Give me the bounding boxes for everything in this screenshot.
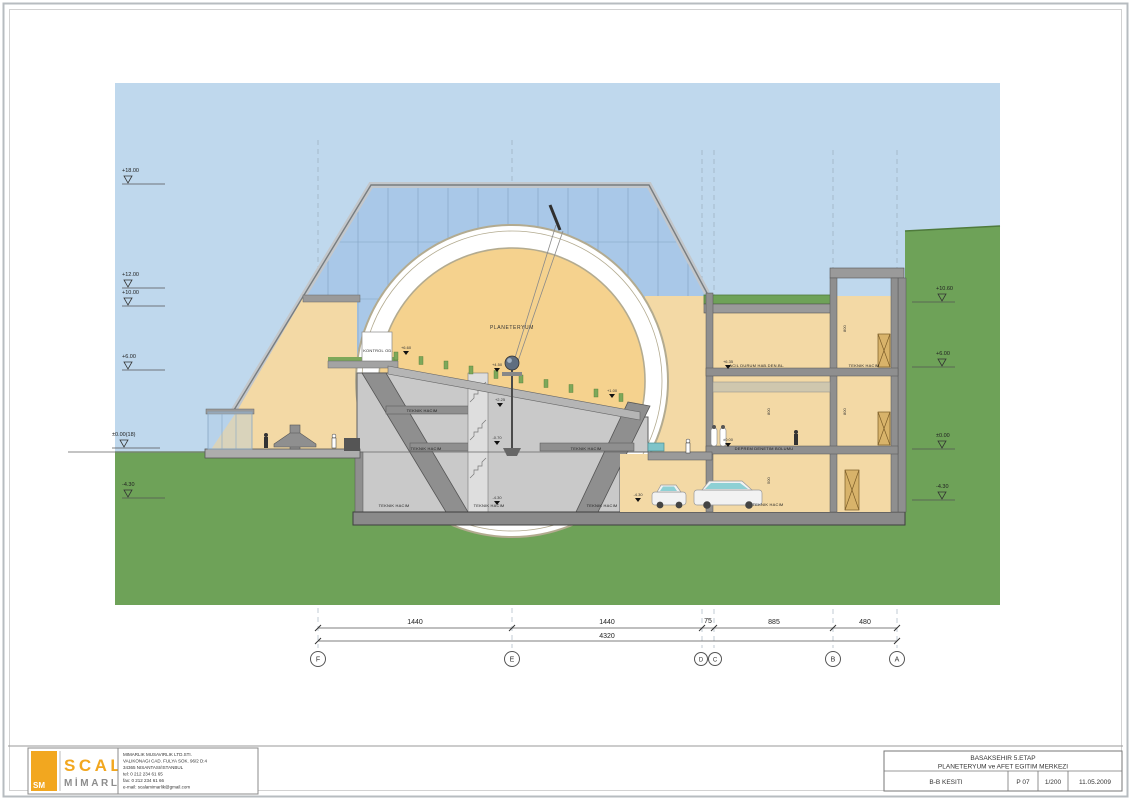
dim-label: 1440 — [599, 619, 615, 626]
earthquake-room-label: DEPREM DENETIM BOLUMU — [735, 446, 794, 451]
vdim-label: 800 — [766, 408, 771, 415]
retaining-wall — [898, 278, 906, 512]
wall-a — [891, 278, 898, 512]
address-line: MIMARLIK MUSAVIRLIK LTD.STI. — [123, 752, 192, 757]
catwalk-slab — [328, 361, 398, 368]
elevation-label: -4.30 — [122, 482, 135, 488]
sheet-number: P 07 — [1016, 779, 1030, 786]
project-name-line2: PLANETERYUM ve AFET EGITIM MERKEZI — [938, 764, 1068, 771]
elevation-label: +12.00 — [122, 272, 139, 278]
vdim-label: 500 — [766, 477, 771, 484]
svg-text:B: B — [831, 657, 836, 664]
elev-mark: +1.00 — [607, 388, 618, 393]
drawing-sheet: PLANETERYUM KONTROL OD. TEKNIK HACIM TEK… — [0, 0, 1131, 800]
elevation-label: +10.60 — [936, 286, 953, 292]
project-title-block: BASAKSEHIR 5.ETAP PLANETERYUM ve AFET EG… — [884, 751, 1122, 791]
turnstile-equipment — [344, 438, 360, 451]
technical-room-label: TEKNIK HACIM — [379, 503, 410, 508]
grid-bubble-e: E — [505, 652, 520, 667]
elev-mark: +6.35 — [723, 359, 734, 364]
grid-bubble-d: D — [695, 653, 708, 666]
svg-text:F: F — [316, 657, 320, 664]
elevation-label: ±0.00(18) — [112, 432, 136, 438]
elevation-label: -4.30 — [936, 484, 949, 490]
technical-room-label: TEKNIK HACIM — [407, 408, 438, 413]
emergency-room-label: ACIL DURUM HAB.DEN.BL. — [729, 363, 784, 368]
technical-room-label: TEKNIK HACIM — [411, 446, 442, 451]
address-line: fax: 0 212 234 61 66 — [123, 778, 165, 783]
wall-b — [830, 278, 837, 512]
canopy-glass — [208, 412, 252, 449]
floor-slab — [706, 368, 898, 376]
elev-mark: -0.70 — [492, 435, 502, 440]
roof-slab — [704, 304, 834, 313]
dim-label: 75 — [704, 618, 712, 625]
terrain-left-field — [115, 452, 355, 605]
control-room-box — [362, 332, 392, 361]
vdim-label: 800 — [842, 408, 847, 415]
dim-label: 480 — [859, 619, 871, 626]
vdim-label: 800 — [842, 325, 847, 332]
svg-text:D: D — [699, 658, 704, 664]
drawing-name: B-B KESITI — [929, 779, 962, 786]
address-line: tel: 0 212 234 61 65 — [123, 772, 163, 777]
wall-dc — [706, 293, 713, 512]
elev-mark: -4.30 — [492, 495, 502, 500]
elev-mark: -4.30 — [633, 492, 643, 497]
parapet — [830, 268, 904, 278]
elev-mark: +2.25 — [495, 397, 506, 402]
section-drawing-canvas: PLANETERYUM KONTROL OD. TEKNIK HACIM TEK… — [0, 0, 1131, 800]
green-roof — [704, 295, 834, 304]
address-line: 34365 NISANTASI/ISTANBUL — [123, 765, 184, 770]
elevation-label: ±0.00 — [936, 433, 950, 439]
grid-bubble-a: A — [890, 652, 905, 667]
grid-bubble-c: C — [709, 653, 722, 666]
dim-label: 1440 — [407, 619, 423, 626]
svg-text:A: A — [895, 657, 900, 664]
technical-room-label: TEKNIK HACIM — [474, 503, 505, 508]
foundation-slab — [353, 512, 905, 525]
control-room-label: KONTROL OD. — [363, 348, 393, 353]
project-name-line1: BASAKSEHIR 5.ETAP — [970, 755, 1035, 762]
elev-mark: +4.50 — [492, 362, 503, 367]
technical-room-label: TEKNIK HACIM — [587, 503, 618, 508]
skylight — [648, 443, 664, 451]
terrain-under-building — [355, 524, 905, 605]
address-line: e-mail: scalamimarlik@gmail.com — [123, 785, 190, 790]
drawing-scale: 1/200 — [1045, 779, 1062, 786]
drawing-date: 11.05.2009 — [1079, 779, 1111, 786]
terrain-right-hill — [905, 226, 1000, 605]
elevation-label: +10.00 — [122, 290, 139, 296]
elevation-label: +6.00 — [122, 354, 136, 360]
dim-label: 885 — [768, 619, 780, 626]
elev-mark: +6.60 — [401, 345, 412, 350]
svg-text:E: E — [510, 657, 515, 664]
elev-mark: ±0.00 — [723, 437, 734, 442]
dim-total-label: 4320 — [599, 633, 615, 640]
address-block: MIMARLIK MUSAVIRLIK LTD.STI. VALIKONAGI … — [118, 748, 258, 794]
grid-bubble-f: F — [311, 652, 326, 667]
plaza-slab — [205, 449, 360, 458]
grid-bubble-b: B — [826, 652, 841, 667]
svg-text:C: C — [713, 658, 718, 664]
technical-room-label: TEKNIK HACIM — [849, 363, 880, 368]
technical-room-label: TEKNIK HACIM — [753, 502, 784, 507]
parked-cars — [652, 481, 762, 509]
planetarium-label: PLANETERYUM — [490, 325, 534, 331]
logo-monogram: SM — [33, 781, 45, 790]
elevation-label: +18.00 — [122, 168, 139, 174]
gap-slab — [648, 452, 712, 460]
beam-band — [713, 382, 830, 392]
technical-room-label: TEKNIK HACIM — [571, 446, 602, 451]
elevation-label: +6.00 — [936, 351, 950, 357]
address-line: VALIKONAGI CAD. FULYA SOK. 96/2 D:4 — [123, 759, 208, 764]
